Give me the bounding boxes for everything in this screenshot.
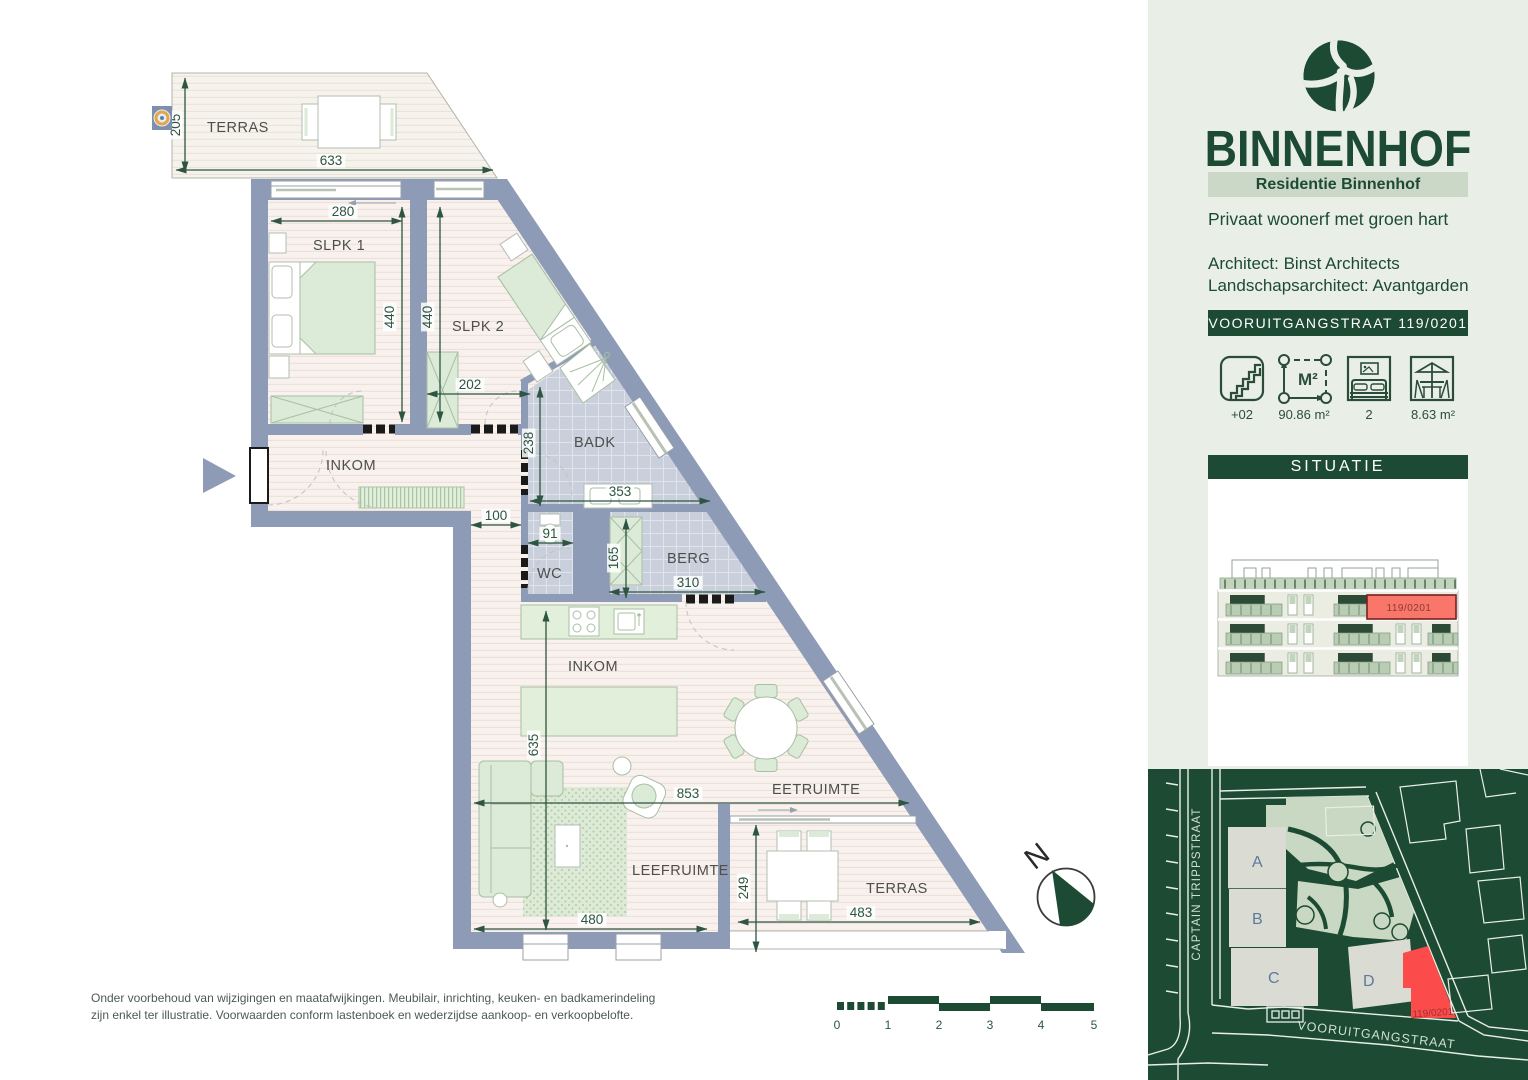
svg-text:119/0201: 119/0201	[1387, 603, 1432, 614]
svg-text:480: 480	[581, 912, 604, 927]
svg-text:353: 353	[609, 484, 632, 499]
svg-text:165: 165	[606, 547, 621, 570]
svg-text:4: 4	[1038, 1018, 1045, 1032]
svg-text:310: 310	[677, 575, 700, 590]
svg-text:SLPK 1: SLPK 1	[313, 238, 365, 254]
svg-text:BERG: BERG	[667, 551, 710, 567]
svg-text:WC: WC	[537, 566, 562, 582]
svg-text:B: B	[1252, 911, 1263, 928]
svg-text:635: 635	[526, 734, 541, 757]
svg-text:91: 91	[542, 526, 557, 541]
svg-text:280: 280	[332, 204, 355, 219]
svg-text:INKOM: INKOM	[326, 458, 376, 474]
svg-text:100: 100	[485, 508, 508, 523]
svg-text:440: 440	[420, 306, 435, 329]
svg-text:249: 249	[736, 877, 751, 900]
svg-text:A: A	[1252, 854, 1263, 871]
svg-text:zijn enkel ter illustratie. Vo: zijn enkel ter illustratie. Voorwaarden …	[91, 1008, 633, 1022]
svg-text:C: C	[1268, 970, 1280, 987]
svg-text:202: 202	[459, 377, 482, 392]
svg-text:238: 238	[521, 432, 536, 455]
svg-text:Onder voorbehoud van wijziging: Onder voorbehoud van wijzigingen en maat…	[91, 991, 655, 1005]
svg-text:SLPK 2: SLPK 2	[452, 319, 504, 335]
svg-text:LEEFRUIMTE: LEEFRUIMTE	[632, 863, 729, 879]
svg-text:TERRAS: TERRAS	[866, 881, 928, 897]
svg-text:440: 440	[382, 306, 397, 329]
svg-text:EETRUIMTE: EETRUIMTE	[772, 782, 860, 798]
svg-text:5: 5	[1091, 1018, 1098, 1032]
svg-text:483: 483	[850, 905, 873, 920]
svg-text:2: 2	[936, 1018, 943, 1032]
svg-text:3: 3	[987, 1018, 994, 1032]
svg-text:BADK: BADK	[574, 435, 616, 451]
svg-text:CAPTAIN TRIPPSTRAAT: CAPTAIN TRIPPSTRAAT	[1191, 807, 1203, 960]
svg-text:853: 853	[677, 786, 700, 801]
svg-text:1: 1	[885, 1018, 892, 1032]
svg-text:INKOM: INKOM	[568, 659, 618, 675]
svg-text:N: N	[1018, 837, 1055, 876]
svg-text:TERRAS: TERRAS	[207, 120, 269, 136]
svg-text:M²: M²	[1298, 370, 1318, 389]
svg-text:0: 0	[834, 1018, 841, 1032]
svg-text:633: 633	[320, 153, 343, 168]
svg-text:D: D	[1363, 973, 1375, 990]
